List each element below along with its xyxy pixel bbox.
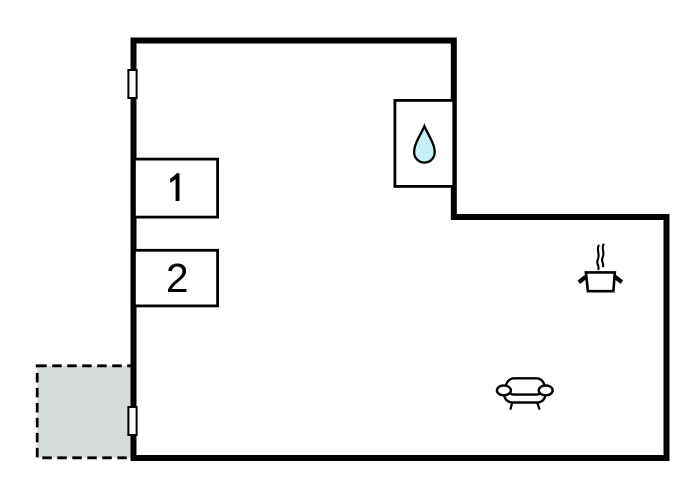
- svg-text:2: 2: [166, 255, 189, 301]
